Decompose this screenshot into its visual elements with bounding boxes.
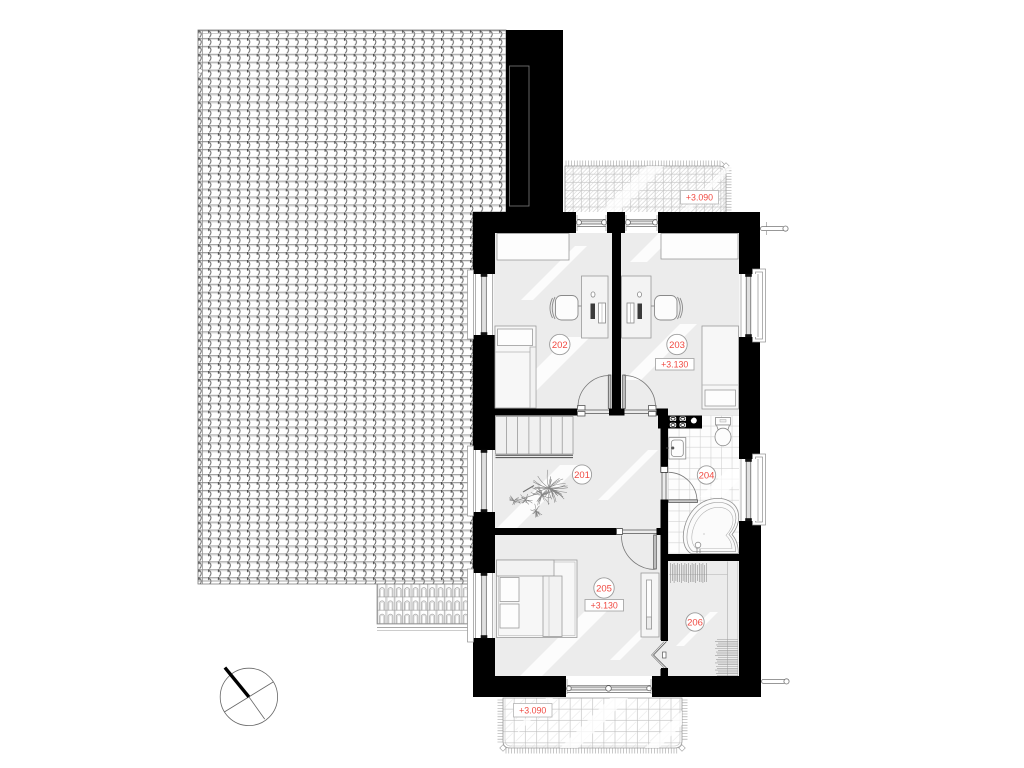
svg-text:+3.130: +3.130 (591, 600, 618, 610)
svg-text:205: 205 (596, 584, 612, 595)
svg-text:203: 203 (669, 340, 685, 351)
svg-text:+3.130: +3.130 (661, 359, 688, 369)
svg-text:202: 202 (552, 340, 568, 351)
svg-text:+3.090: +3.090 (519, 706, 546, 716)
svg-text:201: 201 (574, 470, 590, 481)
svg-text:206: 206 (687, 618, 703, 629)
svg-text:+3.090: +3.090 (686, 193, 713, 203)
svg-text:204: 204 (699, 471, 715, 482)
